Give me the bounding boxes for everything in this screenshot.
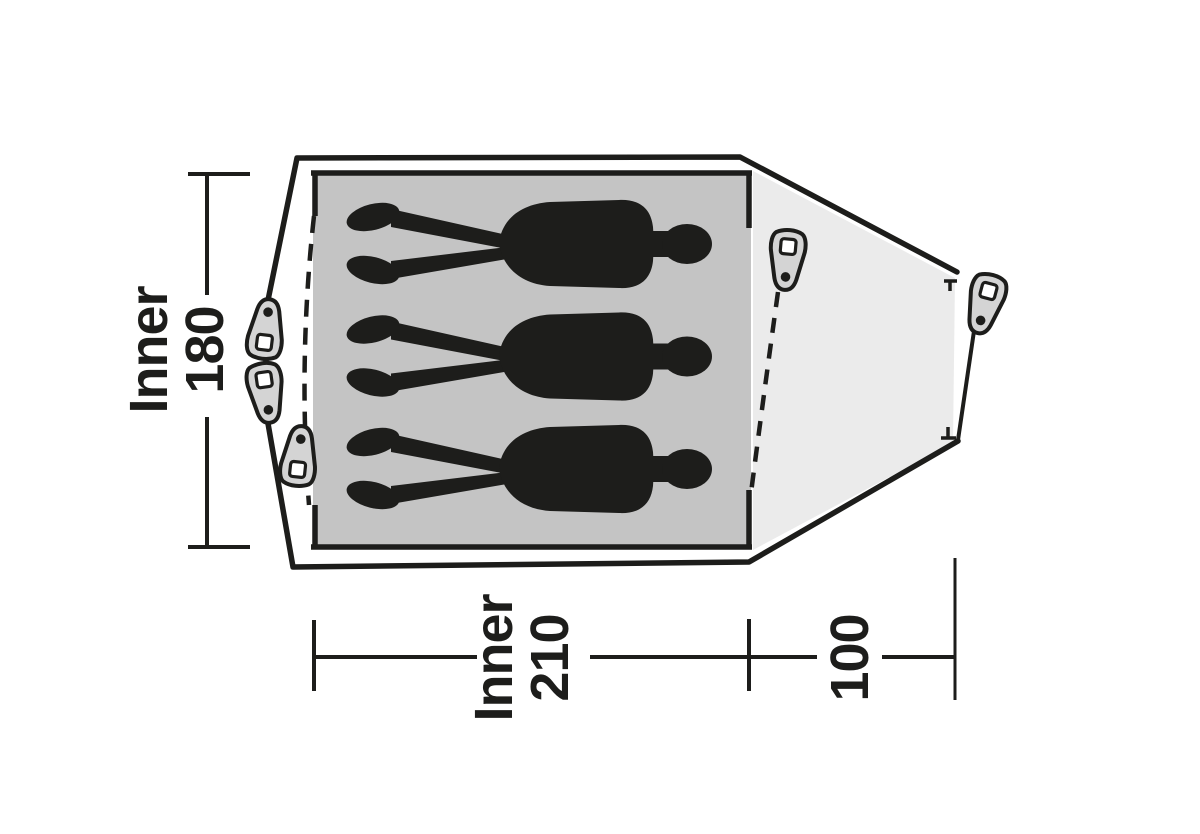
dimension-label-value: 210 [522,594,578,721]
guy-line [958,331,974,440]
dimension-label-inner-length: Inner 210 [466,594,578,721]
floorplan-canvas [0,0,1200,834]
dimension-label-porch-depth: 100 [822,614,878,701]
tent-floorplan-diagram: Inner 180 Inner 210 100 [0,0,1200,834]
tent-peg-icon [245,361,288,425]
dimension-label-value: 100 [822,614,878,701]
dimension-label-inner-width: Inner 180 [121,286,233,413]
dimension-label-value: 180 [177,286,233,413]
porch-area [753,171,955,550]
dimension-label-word: Inner [466,594,522,721]
dimension-label-word: Inner [121,286,177,413]
tent-peg-icon [245,297,287,361]
tent-peg-icon [960,271,1009,338]
